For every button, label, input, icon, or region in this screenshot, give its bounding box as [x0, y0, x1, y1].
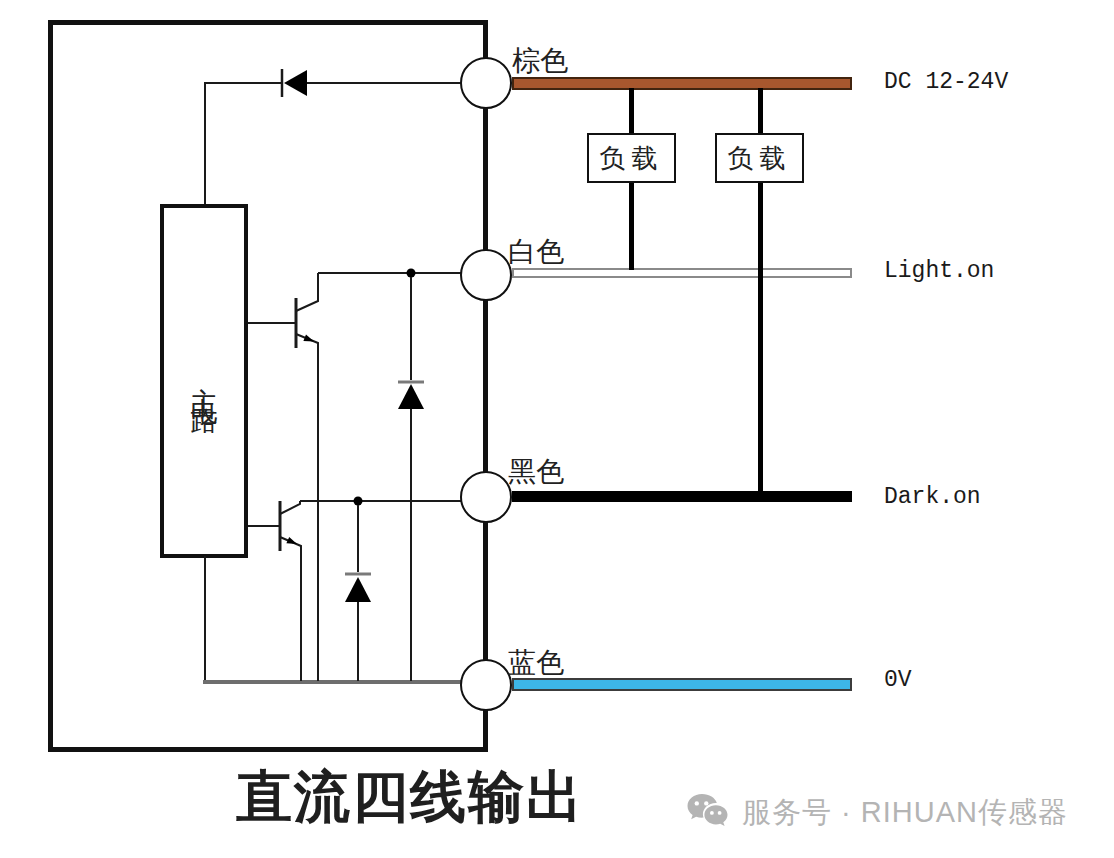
- clamp-diode-upper: [398, 277, 424, 681]
- circuit-linework: [0, 0, 1114, 858]
- label-brown-wire: 棕色: [512, 42, 568, 80]
- reverse-protection-diode: [205, 69, 461, 97]
- label-black-wire: 黑色: [508, 453, 564, 491]
- npn-transistor-lower: [248, 501, 301, 681]
- wiring-diagram: 主电路: [0, 0, 1114, 858]
- wechat-icon: [686, 792, 730, 834]
- terminal-brown: [460, 57, 512, 109]
- load2-bottom-lead: [758, 183, 763, 492]
- label-blue-wire: 蓝色: [508, 644, 564, 682]
- label-light-on: Light.on: [884, 258, 994, 284]
- terminal-blue: [460, 659, 512, 711]
- junction-dot-upper: [407, 269, 416, 278]
- terminal-white: [460, 249, 512, 301]
- load2-top-lead: [758, 88, 763, 133]
- load-box-2: 负载: [715, 133, 804, 183]
- load1-bottom-lead: [629, 183, 634, 270]
- load-box-1: 负载: [587, 133, 676, 183]
- npn-transistor-upper: [248, 273, 318, 681]
- label-white-wire: 白色: [508, 233, 564, 271]
- junction-dot-lower: [354, 497, 363, 506]
- load1-top-lead: [629, 88, 634, 133]
- watermark: 服务号 · RIHUAN传感器: [686, 792, 1068, 834]
- black-wire: [512, 491, 852, 502]
- label-zero-volt: 0V: [884, 667, 912, 693]
- label-dark-on: Dark.on: [884, 484, 981, 510]
- terminal-black: [460, 471, 512, 523]
- load1-label: 负载: [600, 141, 664, 176]
- label-dc-supply: DC 12-24V: [884, 69, 1008, 95]
- load2-label: 负载: [728, 141, 792, 176]
- clamp-diode-lower: [345, 505, 371, 681]
- watermark-text: 服务号 · RIHUAN传感器: [742, 793, 1068, 833]
- diagram-title: 直流四线输出: [110, 760, 710, 836]
